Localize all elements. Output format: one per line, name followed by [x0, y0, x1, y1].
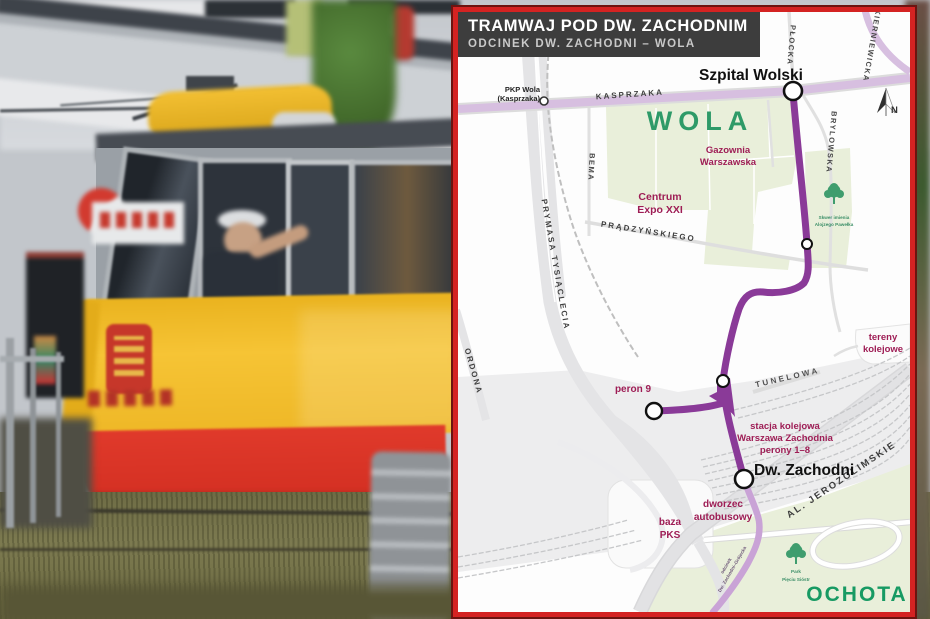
svg-text:Gazownia: Gazownia	[706, 145, 751, 156]
warsaw-crest-detail	[114, 336, 144, 376]
svg-text:perony 1–8: perony 1–8	[760, 445, 810, 456]
fence-post-2	[30, 348, 36, 523]
map-panel: N KASPRZAKA PŁOCKA SKIERNIEWICKA BRYLOWS…	[453, 7, 915, 617]
tram-side-window-2	[350, 160, 464, 310]
svg-text:Expo XXI: Expo XXI	[637, 204, 683, 216]
stop-marker-peron-9	[646, 403, 662, 419]
poi-label-centrum-expo: Centrum Expo XXI	[637, 191, 683, 216]
svg-text:tereny: tereny	[869, 332, 898, 343]
poi-label-tereny-kolejowe: tereny kolejowe	[863, 332, 903, 355]
station-label-pkp-wola: PKP Wola (Kasprzaka)	[497, 85, 540, 103]
fence-post-3	[56, 352, 61, 517]
district-label-ochota: OCHOTA	[806, 583, 907, 606]
svg-text:Skwer imienia: Skwer imienia	[819, 215, 850, 220]
stop-marker-junction	[717, 375, 729, 387]
svg-text:baza: baza	[659, 517, 682, 528]
compass-n-label: N	[891, 105, 898, 116]
fence-rail	[0, 356, 64, 362]
svg-text:kolejowe: kolejowe	[863, 344, 903, 355]
station-marker-pkp-wola	[540, 97, 548, 105]
fleet-number-marks	[88, 389, 178, 407]
svg-text:Centrum: Centrum	[638, 191, 681, 203]
stop-marker-mid	[802, 239, 812, 249]
svg-text:Warszawa Zachodnia: Warszawa Zachodnia	[737, 433, 833, 444]
stop-label-dw-zachodni: Dw. Zachodni	[754, 462, 854, 479]
body-highlight	[300, 310, 460, 430]
shop-sign-red-letters	[100, 212, 176, 228]
svg-text:PKS: PKS	[660, 530, 681, 541]
svg-text:Warszawska: Warszawska	[700, 157, 757, 168]
fence-post-1	[6, 338, 14, 528]
map-title: TRAMWAJ POD DW. ZACHODNIM	[468, 17, 748, 36]
window-upper-1	[205, 0, 295, 18]
poi-label-gazownia: Gazownia Warszawska	[700, 145, 757, 168]
svg-text:PKP Wola: PKP Wola	[505, 85, 541, 94]
map-header: TRAMWAJ POD DW. ZACHODNIM ODCINEK DW. ZA…	[458, 12, 760, 57]
svg-text:dworzec: dworzec	[703, 499, 743, 510]
stop-marker-dw-zachodni	[735, 470, 753, 488]
street-label-bema: BEMA	[586, 153, 596, 182]
svg-text:stacja kolejowa: stacja kolejowa	[750, 421, 820, 432]
stop-marker-szpital-wolski	[784, 82, 802, 100]
district-label-wola: WOLA	[647, 106, 753, 136]
map-subtitle: ODCINEK DW. ZACHODNI – WOLA	[468, 38, 748, 51]
stop-label-peron-9: peron 9	[615, 384, 652, 395]
svg-text:Park: Park	[791, 569, 801, 574]
route-map: N KASPRZAKA PŁOCKA SKIERNIEWICKA BRYLOWS…	[458, 12, 910, 612]
svg-text:Alojzego Pawełka: Alojzego Pawełka	[815, 222, 854, 227]
svg-text:autobusowy: autobusowy	[694, 512, 753, 523]
screenshot-root: N KASPRZAKA PŁOCKA SKIERNIEWICKA BRYLOWS…	[0, 0, 930, 619]
stop-label-szpital-wolski: Szpital Wolski	[699, 67, 803, 84]
svg-text:(Kasprzaka): (Kasprzaka)	[497, 94, 540, 103]
svg-text:Pięciu Sióstr: Pięciu Sióstr	[782, 577, 810, 582]
